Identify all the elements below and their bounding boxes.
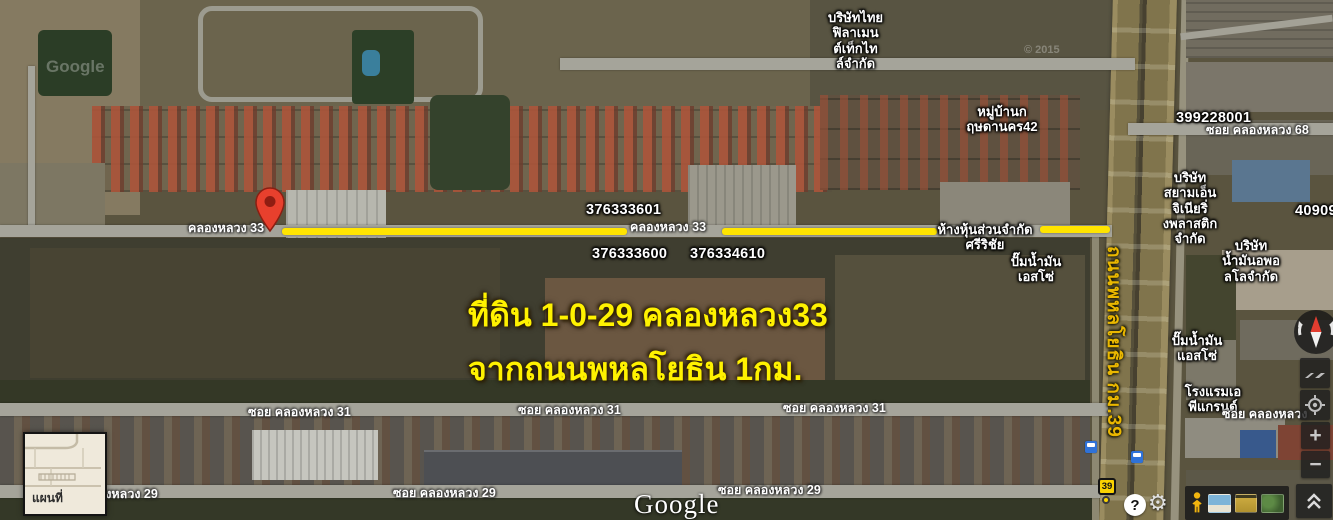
- google-watermark: Google: [46, 57, 105, 77]
- label-esso-station-2: ปั๊มน้ำมัน แอสโซ่: [1160, 333, 1234, 364]
- my-location-icon: [1305, 395, 1325, 415]
- help-button[interactable]: ?: [1124, 494, 1146, 516]
- label-partnership-sririchai: ห้างหุ้นส่วนจำกัด ศรีริชัย: [928, 222, 1042, 253]
- label-esso-station: ปั๊มน้ำมัน เอสโซ่: [1000, 254, 1072, 285]
- my-location-button[interactable]: [1300, 390, 1330, 420]
- annotation-land-title: ที่ดิน 1-0-29 คลองหลวง33: [468, 290, 828, 341]
- terrain-strip: [0, 498, 1095, 520]
- minimap-label: แผนที่: [32, 489, 63, 508]
- label-parcel-376333601: 376333601: [586, 202, 661, 219]
- terrain-trees: [430, 95, 510, 190]
- label-company-oil-apollo: บริษัท น้ำมันอพอ ลโลจำกัด: [1205, 238, 1297, 284]
- zoom-out-button[interactable]: −: [1301, 451, 1330, 478]
- label-village-krisda: หมู่บ้านก ฤษดานคร42: [952, 104, 1052, 135]
- bus-stop-icon[interactable]: [1131, 451, 1143, 463]
- label-company-thai-filament: บริษัทไทย ฟิลาเมน ต์เท็กไท ล์จำกัด: [808, 10, 903, 71]
- label-parcel-376333600: 376333600: [592, 246, 667, 263]
- terrain-field: [30, 248, 500, 378]
- route-shield-39: 39: [1098, 478, 1116, 495]
- road-estate-vertical: [28, 66, 35, 228]
- imagery-bar: [1185, 486, 1289, 520]
- settings-gear-button[interactable]: ⚙: [1148, 490, 1168, 516]
- label-road-klongluang-33-mid: คลองหลวง 33: [630, 220, 706, 235]
- annotation-distance: จากถนนพหลโยธิน 1กม.: [468, 344, 802, 395]
- building-blue-roof: [1232, 160, 1310, 202]
- tilt-45-icon: [1304, 366, 1326, 380]
- pegman-icon[interactable]: [1190, 491, 1204, 515]
- label-road-soi-68: ซอย คลองหลวง 68: [1206, 123, 1309, 138]
- label-road-soi-31: ซอย คลองหลวง 31: [248, 405, 351, 420]
- label-parcel-376334610: 376334610: [690, 246, 765, 263]
- warehouse: [688, 165, 796, 227]
- google-logo: Google: [634, 489, 719, 520]
- estate-loop-road: [198, 6, 483, 102]
- compass-control[interactable]: [1292, 308, 1333, 356]
- frontage-road: [1092, 235, 1099, 520]
- swimming-pool: [362, 50, 380, 76]
- label-road-soi-right: ซอย คลองหลวง: [1222, 407, 1307, 422]
- label-road-soi-29: ซอย คลองหลวง 29: [393, 486, 496, 501]
- containers: [1240, 430, 1276, 458]
- highlight-line-segment: [722, 228, 937, 235]
- minimap-toggle[interactable]: แผนที่: [23, 432, 107, 516]
- bus-stop-icon[interactable]: [1085, 441, 1097, 453]
- imagery-thumbnail[interactable]: [1261, 494, 1284, 513]
- chevron-up-double-icon: [1303, 491, 1325, 511]
- collapse-controls-button[interactable]: [1296, 484, 1332, 518]
- label-road-soi-31: ซอย คลองหลวง 31: [783, 401, 886, 416]
- label-highway-phahonyothin-km39: ถนนพหลโยธิน กม.39: [1107, 246, 1129, 461]
- tilt-view-button[interactable]: [1300, 358, 1330, 388]
- road-soi-29: [0, 485, 1100, 498]
- imagery-thumbnail[interactable]: [1208, 494, 1231, 513]
- label-parcel-40909: 40909: [1295, 203, 1333, 220]
- warehouse: [252, 430, 378, 480]
- satellite-map-canvas[interactable]: บริษัทไทย ฟิลาเมน ต์เท็กไท ล์จำกัด หมู่บ…: [0, 0, 1333, 520]
- building: [1186, 62, 1333, 112]
- imagery-thumbnail[interactable]: [1235, 494, 1258, 513]
- location-marker[interactable]: [252, 186, 288, 234]
- highlight-line-segment: [282, 228, 627, 235]
- zoom-in-button[interactable]: +: [1301, 422, 1330, 449]
- label-road-soi-31: ซอย คลองหลวง 31: [518, 403, 621, 418]
- route-shield-dot: [1102, 496, 1110, 504]
- highlight-line-segment: [1040, 226, 1110, 233]
- copyright-watermark: © 2015: [1024, 44, 1060, 56]
- label-company-siam-engineering: บริษัท สยามเอ็น จิเนียริ่ งพลาสติก จำกัด: [1148, 170, 1232, 247]
- label-road-soi-29: ซอย คลองหลวง 29: [718, 483, 821, 498]
